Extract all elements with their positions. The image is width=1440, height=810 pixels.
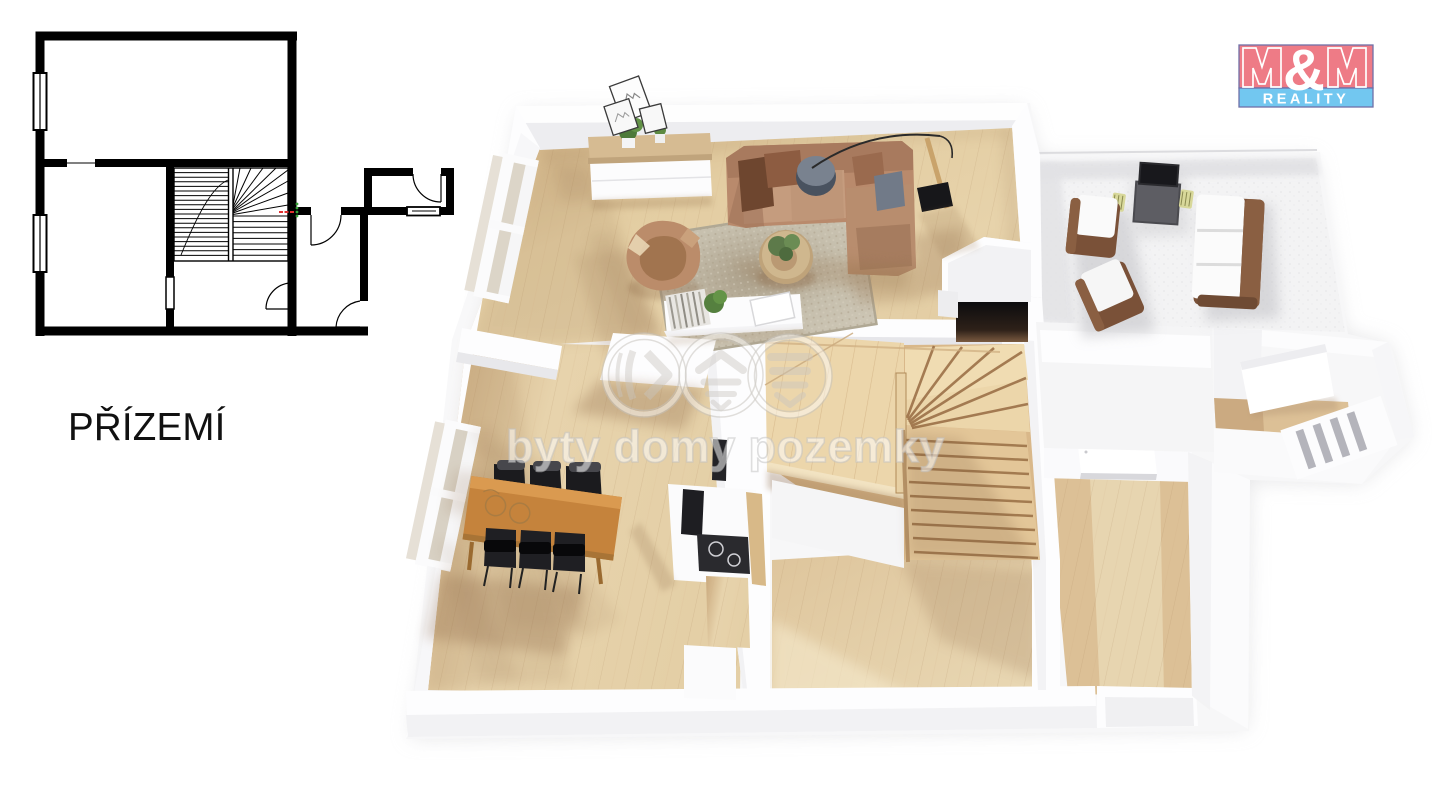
- svg-text:REALITY: REALITY: [1263, 92, 1350, 108]
- svg-text:byty domy pozemky: byty domy pozemky: [506, 421, 945, 472]
- svg-text:PŘÍZEMÍ: PŘÍZEMÍ: [68, 406, 226, 449]
